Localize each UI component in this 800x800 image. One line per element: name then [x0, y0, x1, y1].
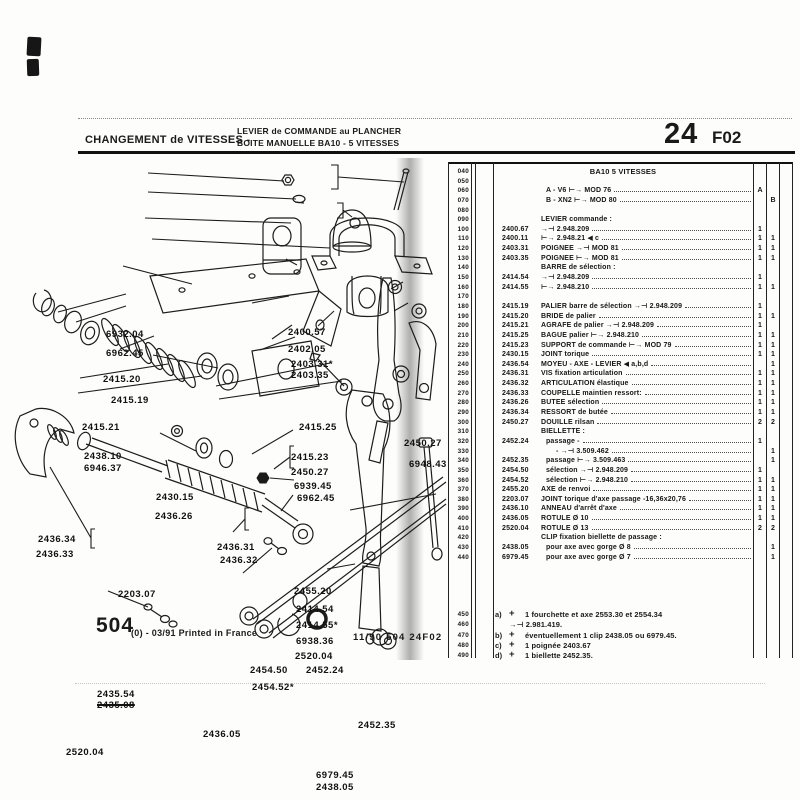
part-number-label: 2415.23 — [291, 452, 329, 463]
part-ref: 2415.20 — [502, 312, 529, 322]
part-description-text: B - XN2 ⊢→ MOD 80 — [546, 196, 617, 206]
part-description: sélection →⊣ 2.948.209 — [546, 466, 753, 476]
qty-col-a: 1 — [754, 514, 766, 524]
row-code: 130 — [448, 254, 469, 264]
part-description: ⊢→ 2.948.210 — [541, 283, 753, 293]
row-code: 150 — [448, 273, 469, 283]
part-number-label: 2452.24 — [306, 665, 344, 676]
row-code: 460 — [448, 620, 469, 630]
row-code: 360 — [448, 476, 469, 486]
hub-fork-drawing — [15, 408, 74, 477]
part-description: LEVIER commande : — [541, 215, 753, 225]
part-description-text: ANNEAU d'arrêt d'axe — [541, 504, 617, 514]
part-ref: 2438.05 — [502, 543, 529, 553]
exploded-diagram: 6932.04 6962.45 2415.20 2415.19 2415.21 … — [0, 160, 447, 690]
part-ref: 2454.52 — [502, 476, 529, 486]
qty-col-a: 1 — [754, 312, 766, 322]
qty-col-b: B — [767, 196, 779, 206]
part-description: JOINT torique — [541, 350, 753, 360]
part-description: ROTULE Ø 10 — [541, 514, 753, 524]
table-row: 140 BARRE de sélection : — [445, 263, 793, 273]
table-row: 180 2415.19 PALIER barre de sélection →⊣… — [445, 302, 793, 312]
part-description-text: COUPELLE maintien ressort: — [541, 389, 642, 399]
qty-col-a: 1 — [754, 398, 766, 408]
part-number-label: 2414.55* — [296, 620, 338, 631]
row-code: 280 — [448, 398, 469, 408]
part-description-text: ARTICULATION élastique — [541, 379, 629, 389]
leader-lines — [50, 165, 436, 607]
part-ref: 2452.35 — [502, 456, 529, 466]
part-number-label: 2452.35 — [358, 720, 396, 731]
part-number-label: 6962.45 — [297, 493, 335, 504]
page-title: CHANGEMENT de VITESSES - — [85, 134, 251, 146]
table-row: 100 2400.67 →⊣ 2.948.209 1 — [445, 225, 793, 235]
qty-col-b: 1 — [767, 553, 779, 563]
row-code: 050 — [448, 177, 469, 187]
qty-col-a: 2 — [754, 524, 766, 534]
part-description: POIGNEE ⊢→ MOD 81 — [541, 254, 753, 264]
row-code: 390 — [448, 504, 469, 514]
clamp-bracket-drawing — [312, 218, 432, 317]
table-row: 060 A - V6 ⊢→ MOD 76 A — [445, 186, 793, 196]
dot-leader — [632, 384, 751, 385]
qty-col-a: 1 — [754, 273, 766, 283]
table-row: 290 2436.34 RESSORT de butée 1 1 — [445, 408, 793, 418]
dark-nut-drawing — [257, 473, 269, 483]
row-code: 310 — [448, 427, 469, 437]
row-code: 370 — [448, 485, 469, 495]
part-description: ⊢→ 2.948.21 ◀ c — [541, 234, 753, 244]
dot-leader — [602, 239, 751, 240]
part-ref: 2436.33 — [502, 389, 529, 399]
dot-leader — [622, 259, 751, 260]
part-description: BIELLETTE : — [541, 427, 753, 437]
table-row: 350 2454.50 sélection →⊣ 2.948.209 1 — [445, 466, 793, 476]
row-code: 200 — [448, 321, 469, 331]
dot-leader — [592, 278, 751, 279]
part-ref: 2400.67 — [502, 225, 529, 235]
part-description-text: BARRE de sélection : — [541, 263, 616, 273]
footnote-row: 490 d) + 1 biellette 2452.35. — [445, 651, 793, 661]
qty-col-b: 1 — [767, 379, 779, 389]
part-ref: 2436.05 — [502, 514, 529, 524]
qty-col-b: 1 — [767, 234, 779, 244]
diagram-drawing — [0, 160, 447, 690]
plus-symbol: + — [509, 650, 515, 660]
part-description-text: DOUILLE rilsan — [541, 418, 594, 428]
footer-ref-number: 504 — [96, 614, 134, 638]
row-code: 420 — [448, 533, 469, 543]
part-number-label: 6939.45 — [294, 481, 332, 492]
row-code: 480 — [448, 641, 469, 651]
row-code: 120 — [448, 244, 469, 254]
part-description: →⊣ 2.948.209 — [541, 225, 753, 235]
part-ref: 2415.25 — [502, 331, 529, 341]
row-code: 220 — [448, 341, 469, 351]
part-number-label: 6962.45 — [106, 348, 144, 359]
qty-col-a: 1 — [754, 321, 766, 331]
row-code: 320 — [448, 437, 469, 447]
part-number-label: 6938.36 — [296, 636, 334, 647]
part-number-label: 2436.33 — [36, 549, 74, 560]
row-code: 350 — [448, 466, 469, 476]
qty-col-b: 1 — [767, 485, 779, 495]
qty-col-b: 1 — [767, 360, 779, 370]
table-row: 150 2414.54 →⊣ 2.948.209 1 — [445, 273, 793, 283]
part-description: COUPELLE maintien ressort: — [541, 389, 753, 399]
footnote-text: 1 fourchette et axe 2553.30 et 2554.34 — [525, 610, 662, 620]
part-ref: 2414.54 — [502, 273, 529, 283]
part-description-text: BRIDE de palier — [541, 312, 596, 322]
part-description: DOUILLE rilsan — [541, 418, 753, 428]
qty-col-b: 1 — [767, 350, 779, 360]
table-row: 200 2415.21 AGRAFE de palier →⊣ 2.948.20… — [445, 321, 793, 331]
table-row: 240 2436.54 MOYEU - AXE - LEVIER ◀ a,b,d… — [445, 360, 793, 370]
part-description: AXE de renvoi — [541, 485, 753, 495]
part-description: MOYEU - AXE - LEVIER ◀ a,b,d — [541, 360, 753, 370]
qty-col-b: 2 — [767, 524, 779, 534]
qty-col-a: 1 — [754, 495, 766, 505]
part-description: - →⊣ 3.509.462 — [556, 447, 753, 457]
table-row: 340 2452.35 passage ⊢→ 3.509.463 1 — [445, 456, 793, 466]
part-description-text: BA10 5 VITESSES — [590, 167, 656, 177]
dot-leader — [592, 529, 751, 530]
part-description-text: JOINT torique — [541, 350, 589, 360]
part-ref: 2403.31 — [502, 244, 529, 254]
part-ref: 2436.34 — [502, 408, 529, 418]
table-row: 170 — [445, 292, 793, 302]
table-top-border — [448, 162, 792, 164]
qty-col-a: 1 — [754, 244, 766, 254]
part-description-text: sélection ⊢→ 2.948.210 — [546, 476, 628, 486]
part-ref: 2430.15 — [502, 350, 529, 360]
part-description-text: passage - — [546, 437, 580, 447]
part-number-label: 2436.26 — [155, 511, 193, 522]
dot-leader — [657, 326, 751, 327]
dot-leader — [612, 452, 751, 453]
row-code: 290 — [448, 408, 469, 418]
part-description: PALIER barre de sélection →⊣ 2.948.209 — [541, 302, 753, 312]
dot-leader — [614, 191, 751, 192]
qty-col-b: 1 — [767, 476, 779, 486]
part-ref: 2403.35 — [502, 254, 529, 264]
page-subtitle-line2: BOITE MANUELLE BA10 - 5 VITESSES — [237, 138, 399, 148]
dot-leader — [592, 519, 751, 520]
part-number-label: 2438.10 — [84, 451, 122, 462]
qty-col-b: 1 — [767, 514, 779, 524]
part-ref: 2452.24 — [502, 437, 529, 447]
part-ref: 2415.19 — [502, 302, 529, 312]
dot-leader — [622, 249, 751, 250]
part-description-text: BIELLETTE : — [541, 427, 585, 437]
table-row: 400 2436.05 ROTULE Ø 10 1 1 — [445, 514, 793, 524]
row-code: 430 — [448, 543, 469, 553]
part-description-text: MOYEU - AXE - LEVIER ◀ a,b,d — [541, 360, 648, 370]
part-number-label: 2520.04 — [66, 747, 104, 758]
qty-col-b: 1 — [767, 369, 779, 379]
part-description-text: POIGNEE →⊣ MOD 81 — [541, 244, 619, 254]
footnote-letter: b) — [495, 631, 502, 641]
part-number-label: 2435.54 — [97, 689, 135, 700]
footer-doc-code: 11/90 504 24F02 — [353, 632, 442, 643]
part-number-label: 2450.27 — [291, 467, 329, 478]
table-row: 420 CLIP fixation biellette de passage : — [445, 533, 793, 543]
table-row: 260 2436.32 ARTICULATION élastique 1 1 — [445, 379, 793, 389]
footnote-text: 1 poignée 2403.67 — [525, 641, 591, 651]
part-description: BAGUE palier ⊢→ 2.948.210 — [541, 331, 753, 341]
qty-col-b: 1 — [767, 389, 779, 399]
part-description-text: ROTULE Ø 13 — [541, 524, 589, 534]
part-number-label: 2403.35 — [291, 370, 329, 381]
footnote-text: éventuellement 1 clip 2438.05 ou 6979.45… — [525, 631, 677, 641]
row-code: 210 — [448, 331, 469, 341]
bellows-rod-drawing — [75, 430, 313, 544]
part-number-label: 2438.05 — [316, 782, 354, 793]
part-ref: 2450.27 — [502, 418, 529, 428]
dot-leader — [651, 365, 751, 366]
row-code: 060 — [448, 186, 469, 196]
qty-col-a: 1 — [754, 350, 766, 360]
qty-col-b: 1 — [767, 244, 779, 254]
row-code: 260 — [448, 379, 469, 389]
qty-col-b: 1 — [767, 504, 779, 514]
qty-col-a: 1 — [754, 254, 766, 264]
part-description: passage - — [546, 437, 753, 447]
table-row: 110 2400.11 ⊢→ 2.948.21 ◀ c 1 1 — [445, 234, 793, 244]
part-ref: 2436.54 — [502, 360, 529, 370]
qty-col-b: 1 — [767, 408, 779, 418]
plus-symbol: + — [509, 609, 515, 619]
qty-col-b: 1 — [767, 254, 779, 264]
row-code: 300 — [448, 418, 469, 428]
part-ref: 2203.07 — [502, 495, 529, 505]
dot-leader — [631, 471, 751, 472]
part-number-label: 6948.43 — [409, 459, 447, 470]
part-description: →⊣ 2.948.209 — [541, 273, 753, 283]
part-description-text: CLIP fixation biellette de passage : — [541, 533, 662, 543]
qty-col-a: 1 — [754, 225, 766, 235]
part-number-label: 2455.20 — [294, 586, 332, 597]
part-ref: 2454.50 — [502, 466, 529, 476]
row-code: 340 — [448, 456, 469, 466]
part-ref: 2415.21 — [502, 321, 529, 331]
catalog-page: CHANGEMENT de VITESSES - LEVIER de COMMA… — [0, 0, 800, 800]
scan-mark — [27, 59, 40, 76]
part-ref: 2520.04 — [502, 524, 529, 534]
qty-col-b: 1 — [767, 456, 779, 466]
dot-leader — [599, 317, 751, 318]
dot-leader — [597, 423, 751, 424]
part-description-text: BUTEE sélection — [541, 398, 599, 408]
part-ref: 2436.10 — [502, 504, 529, 514]
qty-col-a: 1 — [754, 283, 766, 293]
footnote-row: 470 b) + éventuellement 1 clip 2438.05 o… — [445, 631, 793, 641]
footer-print-info: (0) - 03/91 Printed in France — [131, 628, 257, 638]
table-row: 320 2452.24 passage - 1 — [445, 437, 793, 447]
part-ref: 2455.20 — [502, 485, 529, 495]
part-description: BRIDE de palier — [541, 312, 753, 322]
part-description-text: - →⊣ 3.509.462 — [556, 447, 609, 457]
page-subtitle-line1: LEVIER de COMMANDE au PLANCHER — [237, 126, 401, 136]
part-description: AGRAFE de palier →⊣ 2.948.209 — [541, 321, 753, 331]
part-description-text: ⊢→ 2.948.210 — [541, 283, 589, 293]
qty-col-a: 1 — [754, 408, 766, 418]
row-code: 410 — [448, 524, 469, 534]
part-description-text: sélection →⊣ 2.948.209 — [546, 466, 628, 476]
part-number-label: 6932.04 — [106, 329, 144, 340]
part-number-label: 2430.15 — [156, 492, 194, 503]
part-description: ARTICULATION élastique — [541, 379, 753, 389]
part-description-text: A - V6 ⊢→ MOD 76 — [546, 186, 611, 196]
part-number-label: 2203.07 — [118, 589, 156, 600]
row-code: 140 — [448, 263, 469, 273]
scan-mark — [27, 37, 42, 57]
part-description-text: →⊣ 2.948.209 — [541, 225, 589, 235]
qty-col-a: 1 — [754, 504, 766, 514]
table-row: 070 B - XN2 ⊢→ MOD 80 B — [445, 196, 793, 206]
table-row: 430 2438.05 pour axe avec gorge Ø 8 1 — [445, 543, 793, 553]
row-code: 250 — [448, 369, 469, 379]
part-description-text: AXE de renvoi — [541, 485, 590, 495]
dot-leader — [583, 442, 751, 443]
part-description: JOINT torique d'axe passage -16,36x20,76 — [541, 495, 753, 505]
table-row: 310 BIELLETTE : — [445, 427, 793, 437]
part-number-label: 2454.50 — [250, 665, 288, 676]
boot-drawing — [333, 210, 371, 252]
footnote-letter: d) — [495, 651, 502, 661]
table-row: 040 BA10 5 VITESSES — [445, 167, 793, 177]
part-description-text: ⊢→ 2.948.21 ◀ c — [541, 234, 599, 244]
qty-col-a: 1 — [754, 234, 766, 244]
row-code: 270 — [448, 389, 469, 399]
qty-col-a: 1 — [754, 302, 766, 312]
part-description: VIS fixation articulation — [541, 369, 753, 379]
part-description: pour axe avec gorge Ø 7 — [546, 553, 753, 563]
table-row: 370 2455.20 AXE de renvoi 1 1 — [445, 485, 793, 495]
part-description: SUPPORT de commande ⊢→ MOD 79 — [541, 341, 753, 351]
dot-leader — [592, 288, 751, 289]
row-code: 330 — [448, 447, 469, 457]
row-code: 490 — [448, 651, 469, 661]
part-description: B - XN2 ⊢→ MOD 80 — [546, 196, 753, 206]
part-description: pour axe avec gorge Ø 8 — [546, 543, 753, 553]
dot-leader — [611, 413, 751, 414]
part-number-label: 2520.04 — [295, 651, 333, 662]
parts-table: 040 BA10 5 VITESSES 050 060 — [445, 162, 793, 658]
qty-col-a: 1 — [754, 466, 766, 476]
part-number-label: 2435.08 — [97, 700, 135, 711]
part-description: CLIP fixation biellette de passage : — [541, 533, 753, 543]
part-number-label: 6946.37 — [84, 463, 122, 474]
row-code: 230 — [448, 350, 469, 360]
part-description-text: ROTULE Ø 10 — [541, 514, 589, 524]
part-description: BA10 5 VITESSES — [493, 167, 753, 177]
part-number-label: 2400.57 — [288, 327, 326, 338]
part-description-text: BAGUE palier ⊢→ 2.948.210 — [541, 331, 639, 341]
table-row: 080 — [445, 206, 793, 216]
row-code: 080 — [448, 206, 469, 216]
relay-lever-drawing — [346, 390, 396, 649]
footnote-row: 480 c) + 1 poignée 2403.67 — [445, 641, 793, 651]
part-description-text: pour axe avec gorge Ø 8 — [546, 543, 631, 553]
qty-col-b: 1 — [767, 341, 779, 351]
part-number-label: 2415.19 — [111, 395, 149, 406]
row-code: 450 — [448, 610, 469, 620]
part-description-text: LEVIER commande : — [541, 215, 612, 225]
table-row: 220 2415.23 SUPPORT de commande ⊢→ MOD 7… — [445, 341, 793, 351]
part-description: BUTEE sélection — [541, 398, 753, 408]
part-description-text: SUPPORT de commande ⊢→ MOD 79 — [541, 341, 672, 351]
table-rows: 040 BA10 5 VITESSES 050 060 — [445, 167, 793, 562]
footnote-text: 1 biellette 2452.35. — [525, 651, 593, 661]
qty-col-b: 1 — [767, 495, 779, 505]
part-description: A - V6 ⊢→ MOD 76 — [546, 186, 753, 196]
dot-leader — [689, 500, 751, 501]
part-number-label: 2454.52* — [252, 682, 294, 693]
part-ref: 2415.23 — [502, 341, 529, 351]
ball-pins-drawing — [144, 426, 287, 628]
dot-leader — [628, 461, 751, 462]
table-row: 360 2454.52 sélection ⊢→ 2.948.210 1 1 — [445, 476, 793, 486]
qty-col-a: 1 — [754, 369, 766, 379]
table-row: 250 2436.31 VIS fixation articulation 1 … — [445, 369, 793, 379]
qty-col-a: 1 — [754, 331, 766, 341]
part-number-label: 2415.25 — [299, 422, 337, 433]
dot-leader — [626, 374, 751, 375]
part-number-label: 2450.27 — [404, 438, 442, 449]
table-row: 390 2436.10 ANNEAU d'arrêt d'axe 1 1 — [445, 504, 793, 514]
part-ref: 2436.31 — [502, 369, 529, 379]
part-description-text: VIS fixation articulation — [541, 369, 623, 379]
qty-col-b: 1 — [767, 543, 779, 553]
qty-col-a: 1 — [754, 485, 766, 495]
table-row: 410 2520.04 ROTULE Ø 13 2 2 — [445, 524, 793, 534]
dot-leader — [642, 336, 751, 337]
table-row: 300 2450.27 DOUILLE rilsan 2 2 — [445, 418, 793, 428]
part-description: POIGNEE →⊣ MOD 81 — [541, 244, 753, 254]
part-description: sélection ⊢→ 2.948.210 — [546, 476, 753, 486]
table-row: 090 LEVIER commande : — [445, 215, 793, 225]
part-description-text: JOINT torique d'axe passage -16,36x20,76 — [541, 495, 686, 505]
table-row: 280 2436.26 BUTEE sélection 1 1 — [445, 398, 793, 408]
qty-col-b: 1 — [767, 447, 779, 457]
part-ref: 2436.32 — [502, 379, 529, 389]
table-row: 190 2415.20 BRIDE de palier 1 1 — [445, 312, 793, 322]
row-code: 240 — [448, 360, 469, 370]
part-description: BARRE de sélection : — [541, 263, 753, 273]
part-description: RESSORT de butée — [541, 408, 753, 418]
dot-leader — [592, 230, 751, 231]
qty-col-b: 1 — [767, 331, 779, 341]
row-code: 090 — [448, 215, 469, 225]
qty-col-b: 1 — [767, 398, 779, 408]
link-rods-drawing — [240, 477, 446, 638]
qty-col-a: A — [754, 186, 766, 196]
qty-col-a: 1 — [754, 437, 766, 447]
header-rule — [78, 151, 795, 154]
dot-leader — [685, 307, 751, 308]
dot-leader — [631, 481, 751, 482]
part-number-label: 6979.45 — [316, 770, 354, 781]
qty-col-a: 1 — [754, 379, 766, 389]
part-description-text: →⊣ 2.948.209 — [541, 273, 589, 283]
row-code: 110 — [448, 234, 469, 244]
part-description-text: RESSORT de butée — [541, 408, 608, 418]
dot-leader — [620, 509, 751, 510]
part-number-label: 2436.31 — [217, 542, 255, 553]
qty-col-a: 2 — [754, 418, 766, 428]
table-row: 440 6979.45 pour axe avec gorge Ø 7 1 — [445, 553, 793, 563]
